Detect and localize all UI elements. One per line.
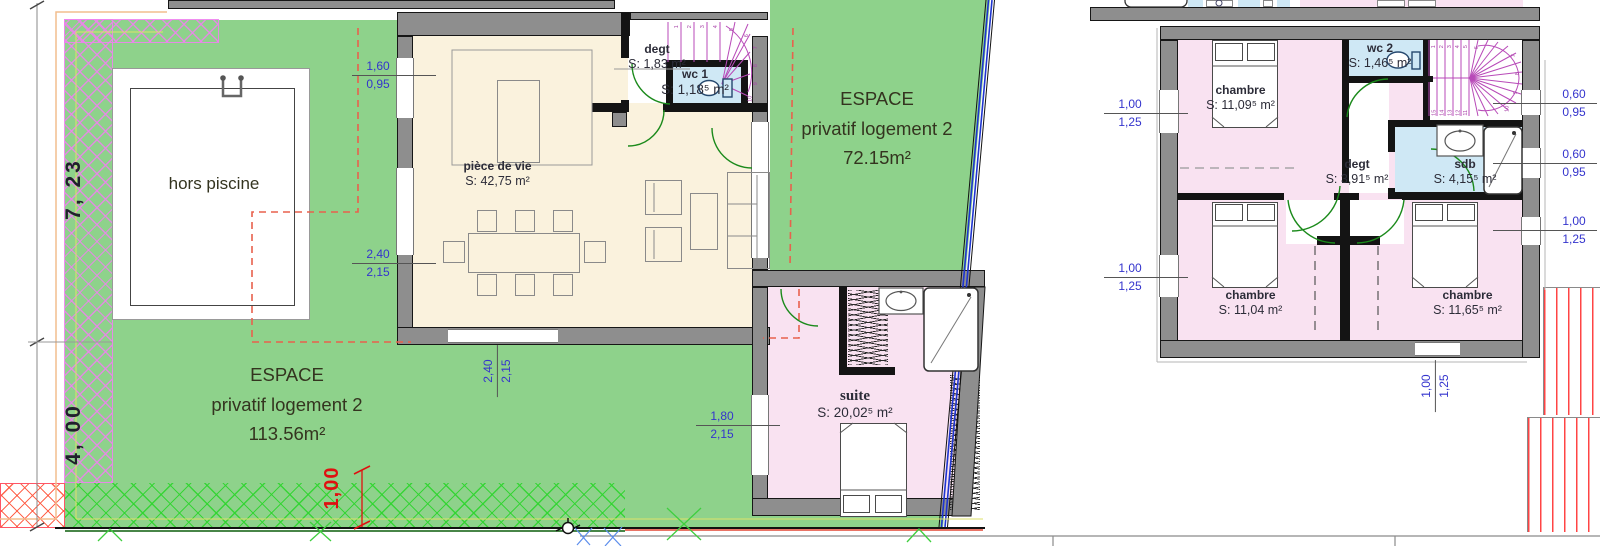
room-label-piece-de-vie: pièce de vie S: 42,75 m² — [430, 160, 565, 188]
stair-tread-number: 4 — [1456, 45, 1462, 48]
wall-upper-left — [1160, 40, 1178, 358]
chair — [515, 274, 535, 296]
stair-tread-number: 10 — [1505, 106, 1511, 112]
suite-closet-wall-h — [839, 367, 895, 375]
armchair — [645, 227, 682, 262]
upper-sliver-blue — [1277, 0, 1290, 7]
window-living-bottom — [448, 329, 558, 343]
garden-right-label: ESPACE privatif logement 2 72.15m² — [772, 84, 982, 173]
chair — [553, 274, 573, 296]
chair — [477, 274, 497, 296]
room-label-wc2: wc 2 S: 1,46⁵ m² — [1340, 42, 1420, 70]
stair-tread-number: 9 — [754, 82, 760, 85]
stair-tread-number: 4 — [714, 25, 720, 28]
dim-upper-win3: 1,001,25 — [1420, 360, 1450, 412]
stair-wall-left — [1423, 40, 1430, 127]
stair-tread-number: 14 — [1440, 110, 1446, 116]
wall-top-main — [397, 12, 630, 36]
stair-tread-number: 2 — [1440, 45, 1446, 48]
sofa — [727, 172, 770, 269]
garden-left-label: ESPACE privatif logement 2 113.56m² — [182, 360, 392, 449]
pillow — [1247, 204, 1275, 221]
stair-tread-number: 5 — [1464, 45, 1470, 48]
wall-suite-top — [752, 270, 985, 287]
suite-closet-wall-v — [839, 287, 847, 374]
floor-plan-canvas: ESPACE privatif logement 2 72.15m² ESPAC… — [0, 0, 1600, 546]
upper-sliver-bed — [1377, 0, 1405, 7]
wall-upper-bottom — [1160, 340, 1540, 358]
sdb-wall-left-upper — [1388, 127, 1395, 152]
stair-tread-number: 8 — [754, 64, 760, 67]
partition-hall-left — [592, 103, 627, 112]
wc2-wall-bottom — [1342, 76, 1430, 83]
chair — [477, 210, 497, 232]
stair-tread-number: 3 — [1448, 45, 1454, 48]
dim-upper-win1: 1,001,25 — [1104, 98, 1156, 128]
stair-tread-number: 12 — [1456, 110, 1462, 116]
dining-table — [468, 233, 580, 273]
dim-upper-right2: 0,600,95 — [1551, 148, 1597, 178]
upper-sliver-white — [1263, 0, 1273, 7]
armchair — [645, 180, 682, 215]
coffee-table — [690, 193, 718, 250]
stair-tread-number: 8 — [1516, 72, 1522, 75]
stair-tread-number: 7 — [1512, 54, 1518, 57]
stair-tread-number: 11 — [1464, 110, 1470, 116]
window-chambre3-bottom — [1415, 342, 1460, 356]
chambre-divider-wall — [1340, 200, 1350, 340]
suite-wardrobe-right — [950, 375, 980, 510]
green-hatch-strip — [65, 483, 625, 528]
dim-ground-win4: 1,802,15 — [696, 410, 748, 440]
wall-upper-top — [1160, 26, 1540, 40]
chambre-top-wall-b — [1334, 193, 1359, 200]
room-label-chambre2: chambre S: 11,04 m² — [1188, 289, 1313, 317]
room-label-degt-upper: degt S: 3,91⁵ m² — [1312, 158, 1402, 186]
window-living-left-2 — [396, 168, 414, 255]
upper-sliver-blue — [1238, 0, 1260, 7]
stair-tread-number: 3 — [701, 25, 707, 28]
room-label-chambre1: chambre S: 11,09⁵ m² — [1178, 84, 1303, 112]
stair-tread-number: 9 — [1514, 91, 1520, 94]
stair-tread-number: 6 — [1475, 46, 1481, 49]
neighbour-hatch-upper — [1543, 287, 1600, 415]
stairs-sdb-wall — [1388, 120, 1522, 127]
stair-tread-number: 7 — [754, 46, 760, 49]
upper-sliver-blue — [1188, 0, 1203, 7]
wall-pier — [612, 112, 627, 127]
pool-basin — [130, 88, 295, 306]
dim-ground-win3: 2,402,15 — [482, 345, 512, 397]
partition-hall-right — [663, 103, 768, 112]
stair-tread-number: 2 — [688, 25, 694, 28]
wall-adjacent-strip — [168, 0, 615, 9]
pillow — [1447, 204, 1475, 221]
dim-ground-win1: 1,600,95 — [352, 60, 404, 90]
room-label-wc1: wc 1 S: 1,18⁵ m² — [650, 68, 740, 97]
stair-tread-number: 1 — [1432, 45, 1438, 48]
chair — [553, 210, 573, 232]
stair-tread-number: 15 — [1432, 110, 1438, 116]
neighbour-hatch-lower — [1527, 417, 1600, 532]
room-label-suite: suite S: 20,02⁵ m² — [795, 388, 915, 421]
pillow — [1215, 43, 1243, 61]
margin-dim-4-00: 4, 00 — [62, 379, 88, 489]
chair — [584, 241, 606, 263]
upper-sliver-wall — [1090, 7, 1540, 21]
stair-tread-number: 5 — [730, 28, 736, 31]
dim-upper-right3: 1,001,25 — [1551, 215, 1597, 245]
red-offset-dim: 1,00 — [321, 453, 345, 523]
pillow — [875, 495, 902, 513]
wall-top-stairs — [630, 12, 768, 20]
pillow — [843, 495, 870, 513]
stair-tread-number: 13 — [1448, 110, 1454, 116]
window-chambre1-left — [1159, 90, 1179, 133]
upper-sliver-bed — [1408, 0, 1436, 7]
pool-label: hors piscine — [148, 174, 280, 194]
chambre-top-wall-c — [1402, 193, 1522, 200]
pillow — [1247, 43, 1275, 61]
room-label-chambre3: chambre S: 11,65⁵ m² — [1405, 289, 1530, 317]
upper-sliver-sink — [1206, 0, 1233, 7]
red-hatch-block — [0, 483, 65, 528]
pillow — [1215, 204, 1243, 221]
stair-tread-number: 1 — [675, 25, 681, 28]
dim-upper-win2: 1,001,25 — [1104, 262, 1156, 292]
window-chambre3-right — [1521, 217, 1541, 245]
margin-dim-7-23: 7, 23 — [62, 134, 88, 244]
suite-wardrobe-left — [848, 290, 888, 365]
dim-upper-right1: 0,600,95 — [1551, 88, 1597, 118]
chambre-divider-crossbar — [1317, 236, 1380, 245]
window-suite-left — [751, 395, 769, 475]
chair — [443, 241, 465, 263]
stair-tread-number: 10 — [748, 96, 754, 102]
pillow — [1415, 204, 1443, 221]
kitchen-island — [497, 80, 540, 163]
dim-ground-win2: 2,402,15 — [352, 248, 404, 278]
chambre-top-wall-a — [1178, 193, 1284, 200]
stair-tread-number: 6 — [745, 34, 751, 37]
chair — [515, 210, 535, 232]
